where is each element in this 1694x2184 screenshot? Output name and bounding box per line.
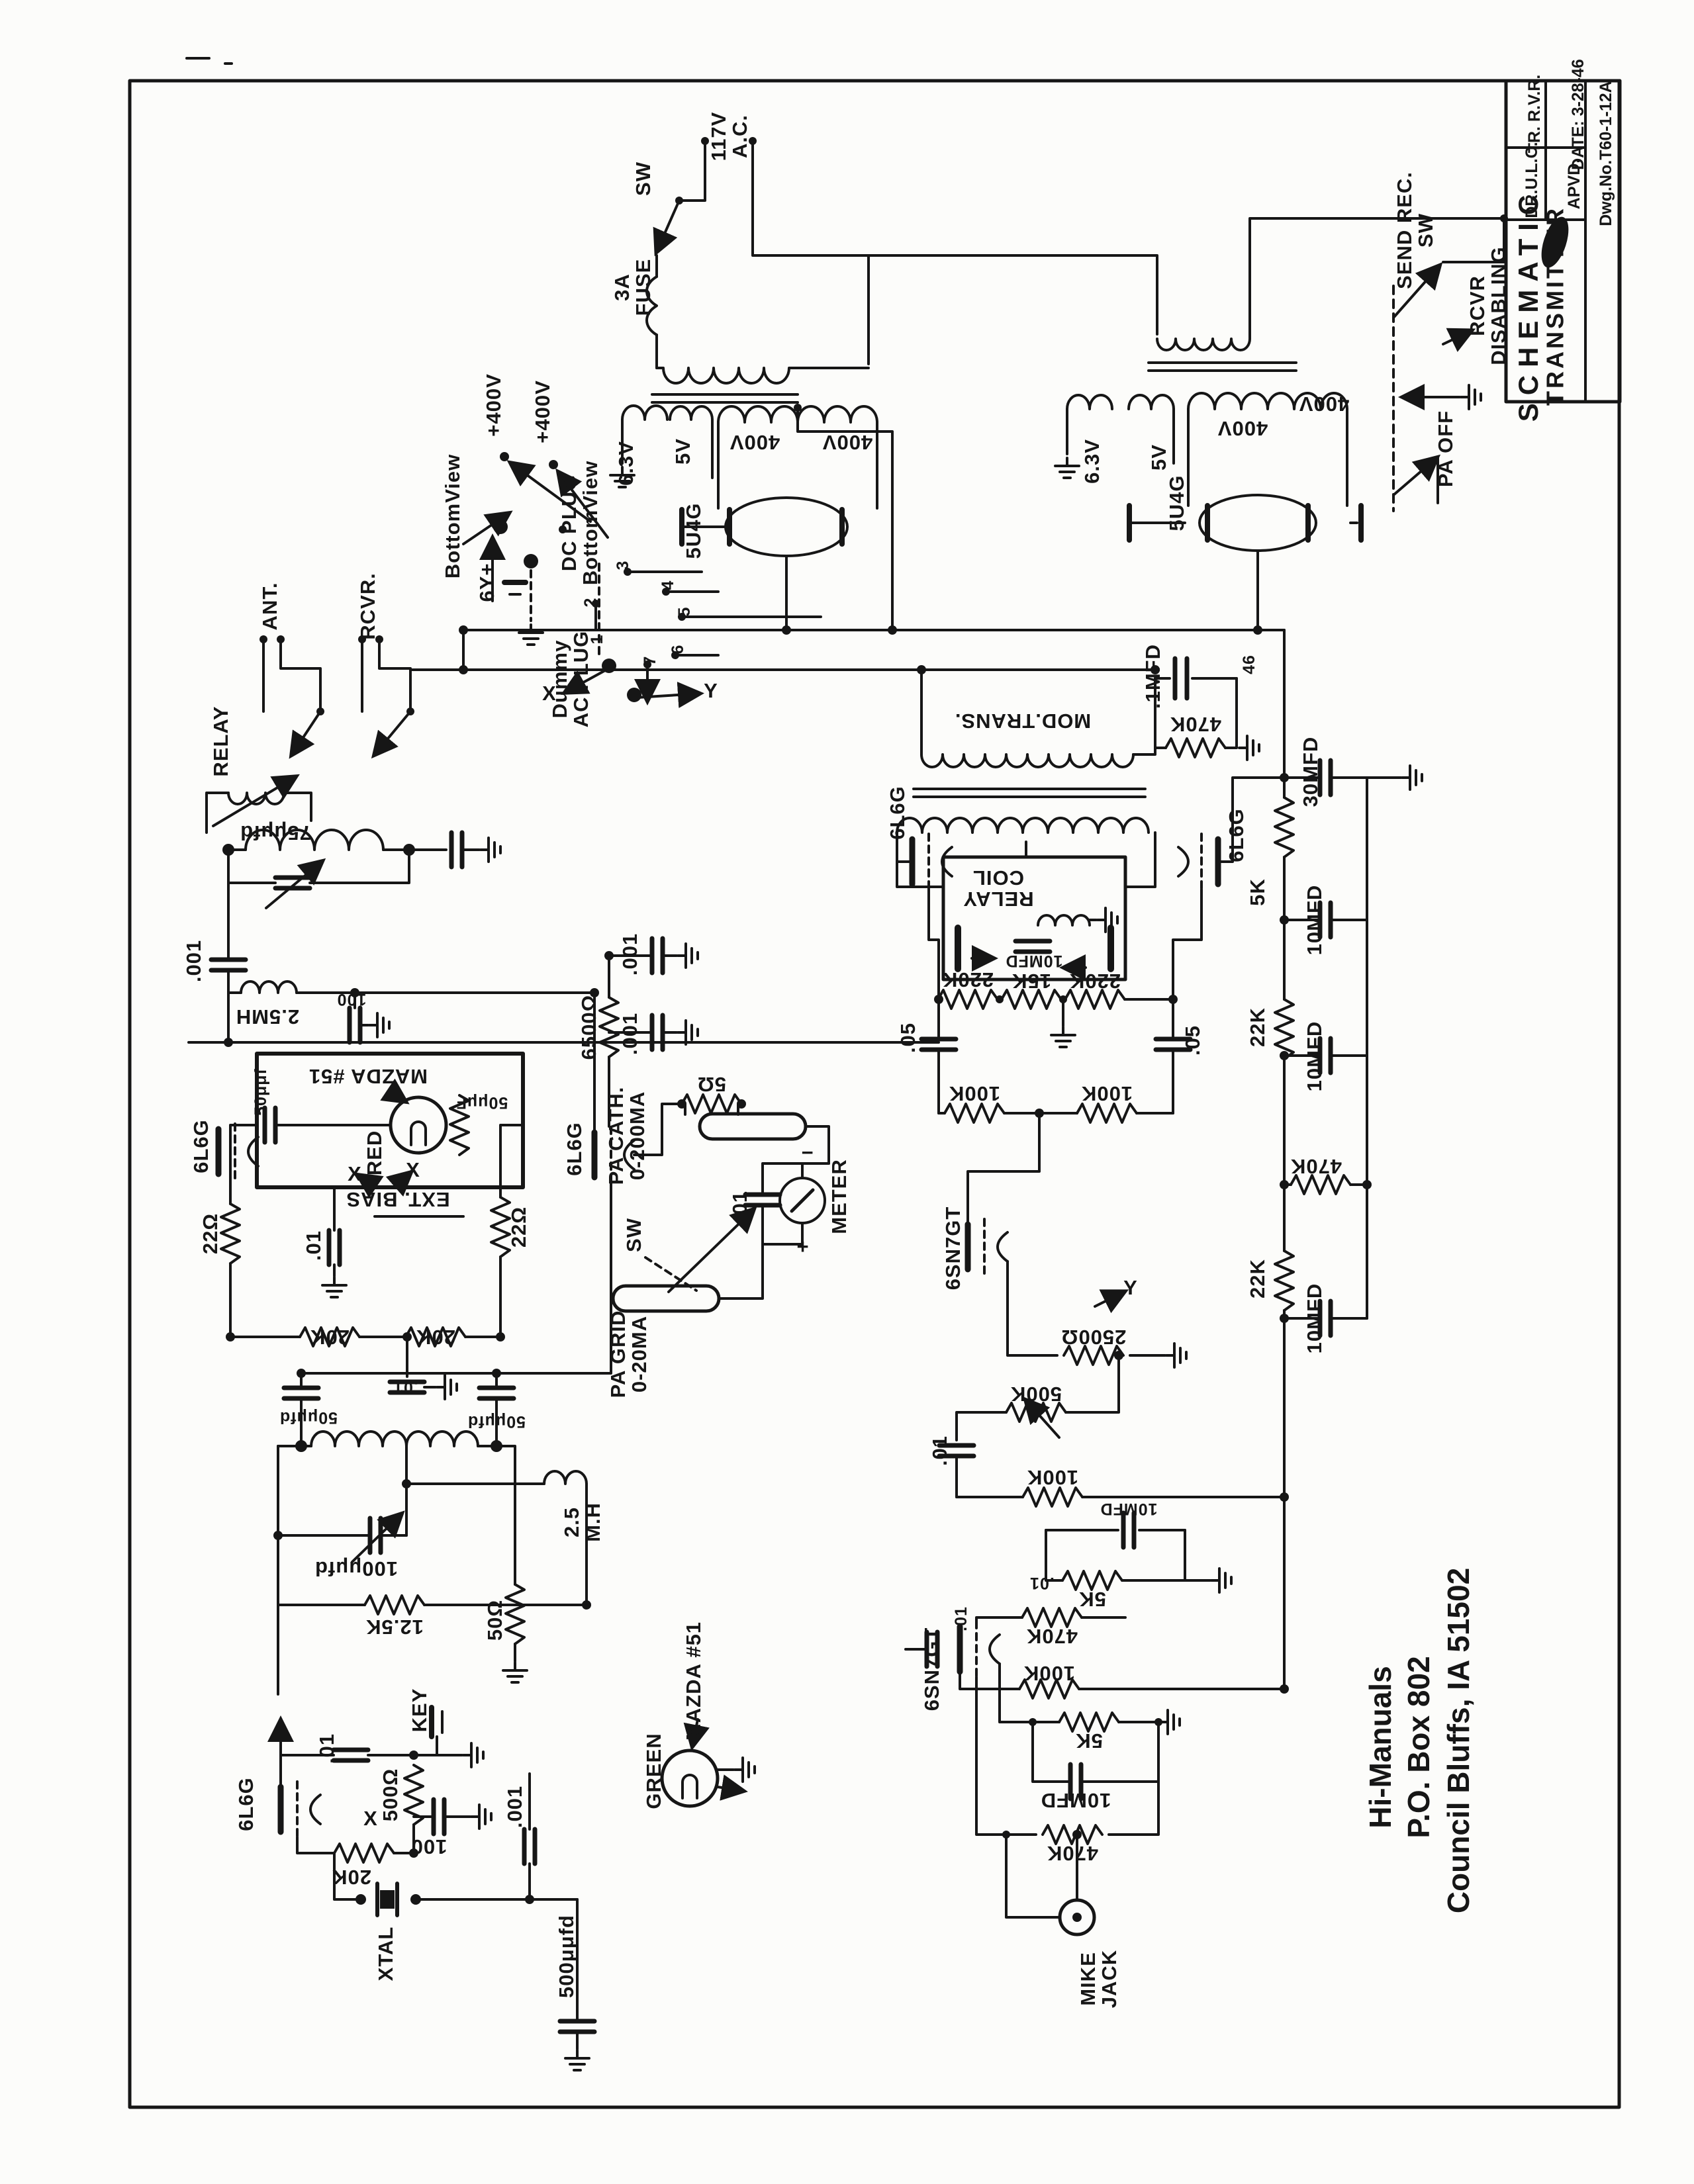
cap-30mfd: 30MFD [1300, 737, 1321, 807]
dummy-ac-plug: Dummy AC PLUG [549, 631, 592, 728]
res-5k-a: 5K [1247, 878, 1268, 906]
mazda-51-red: MAZDA #51 [308, 1066, 428, 1087]
y-plug: Y [704, 680, 718, 702]
res-50ohm: 50Ω [485, 1600, 506, 1641]
pin-3: 3 [614, 561, 632, 570]
six-y-plus: 6Y+ [477, 563, 498, 602]
res-220k-a: 220K [942, 969, 994, 990]
ac-line: 117V A.C. [708, 112, 751, 161]
res-20k-a: 20K [310, 1326, 350, 1347]
pin-5: 5 [676, 607, 693, 617]
res-100k-b: 100K [1081, 1083, 1133, 1104]
res-20k-b: 20K [416, 1326, 455, 1347]
cap-500uufd: 500μμfd [556, 1915, 577, 1998]
pot-500k: 500K [1010, 1383, 1062, 1404]
res-15k: 15K [1012, 970, 1051, 991]
t2-400v-a: 400V [1217, 418, 1268, 439]
rcvr-disabling: RCVR DISABLING [1467, 246, 1509, 365]
mazda-51-green: MAZDA #51 [683, 1621, 704, 1741]
cap-50uufd-c: 50μμfd [279, 1409, 338, 1426]
cap-001-a: .001 [620, 1013, 641, 1055]
pin-46: 46 [1241, 655, 1258, 674]
xtal: XTAL [375, 1927, 397, 1981]
fuse: 3A FUSE [612, 259, 654, 316]
res-22-b: 22Ω [508, 1206, 530, 1248]
meter-minus: − [801, 1142, 814, 1163]
meter: METER [829, 1159, 850, 1234]
tb-date: DATE: 3-28-46 [1570, 59, 1587, 170]
labels-layer: 117V A.C.SW3A FUSESEND REC. SWRCVR DISAB… [0, 0, 1694, 2184]
t1-400v-a: 400V [729, 432, 780, 453]
publisher-1: Hi-Manuals [1365, 1666, 1397, 1828]
cap-10mfd-d: 10MFD [1100, 1500, 1158, 1518]
pa-grid-meter: PA GRID 0-20MA [608, 1310, 650, 1398]
cap-10mfd-b: 10MFD [1304, 1021, 1325, 1092]
res-5ohm: 5Ω [697, 1073, 726, 1095]
meter-switch: SW [624, 1218, 645, 1252]
rect-2: 5U4G [1166, 475, 1188, 531]
cap-05-right: .05 [1182, 1025, 1203, 1056]
cap-50uufd-d: 50μμfd [467, 1413, 526, 1430]
pin-2: 2 [582, 598, 599, 608]
relay: RELAY [211, 705, 232, 776]
res-100k-d: 100K [1023, 1662, 1075, 1684]
mod-trans: MOD.TRANS. [955, 710, 1091, 731]
pin-6: 6 [669, 645, 686, 655]
tube-6l6g-mod-right: 6L6G [1226, 808, 1247, 862]
cap-001-b: .001 [620, 933, 641, 976]
rect-1: 5U4G [683, 503, 704, 559]
cap-01-a: .01 [929, 1435, 951, 1466]
t1-5v: 5V [673, 438, 694, 465]
res-100k-a: 100K [949, 1083, 1000, 1104]
tube-6sn7-2: 6SN7GT [921, 1627, 943, 1711]
res-2500: 2500Ω [1061, 1326, 1127, 1347]
res-20k-osc: 20K [332, 1866, 371, 1888]
tb-transmitter: TRANSMITTER [1542, 206, 1567, 406]
main-switch: SW [633, 161, 654, 196]
cap-10mfd-c: 10MFD [1304, 1283, 1325, 1354]
cap-01-osc: .01 [316, 1733, 338, 1764]
tube-6l6g-osc: 6L6G [236, 1777, 257, 1831]
x-osc: X [363, 1808, 378, 1829]
plus-400v-2: +400V [532, 380, 553, 443]
cap-10mfd-e: 10MFD [1041, 1790, 1111, 1811]
pa-off: PA OFF [1435, 410, 1456, 487]
cap-10mfd-a: 10MFD [1304, 885, 1325, 956]
rcvr: RCVR. [357, 572, 379, 639]
mike-jack: MIKE JACK [1078, 1950, 1120, 2008]
t2-63v: 6.3V [1082, 439, 1103, 484]
cap-001-osc: .001 [504, 1786, 526, 1828]
key: KEY [409, 1688, 430, 1733]
cap-01-e: .01 [1029, 1574, 1055, 1592]
x-plug: X [542, 683, 557, 704]
ant: ANT. [259, 582, 281, 631]
y-audio: Y [1123, 1277, 1138, 1298]
cap-01-b: .01 [953, 1606, 970, 1631]
cap-50uuf-a: 50μμf [252, 1068, 269, 1116]
cap-100uufd: 100μμfd [314, 1558, 398, 1579]
tube-6sn7-1: 6SN7GT [943, 1206, 964, 1291]
t2-5v: 5V [1149, 444, 1170, 471]
pa-cath-meter: PA CATH. 0-200MA [606, 1087, 648, 1185]
res-500-osc: 500Ω [380, 1768, 401, 1822]
cap-10mfd-relay: 10MFD [1006, 952, 1063, 970]
res-100k-c: 100K [1027, 1467, 1078, 1488]
cap-100-b: 100 [337, 991, 367, 1008]
res-5k-c: 5K [1075, 1730, 1103, 1751]
res-22k-a: 22K [1247, 1007, 1268, 1047]
tb-dr: DR.U.L.C. [1523, 142, 1540, 218]
pin-7: 7 [641, 656, 659, 666]
tb-schematic: SCHEMATIC [1514, 187, 1543, 422]
res-470k-mod: 470K [1170, 713, 1221, 735]
cap-01-c: .01 [303, 1230, 324, 1261]
tb-tr: TR. R.V.R. [1526, 75, 1543, 154]
res-5k-b: 5K [1078, 1588, 1106, 1610]
cap-01-d: .01 [393, 1379, 418, 1396]
schematic-page: 117V A.C.SW3A FUSESEND REC. SWRCVR DISAB… [0, 0, 1694, 2184]
tube-6l6g-mod-left: 6L6G [887, 786, 908, 840]
cap-100-osc: 100 [411, 1836, 447, 1857]
res-470k-bleed: 470K [1290, 1156, 1342, 1177]
cap-05-left: .05 [898, 1023, 919, 1053]
res-220k-b: 220K [1069, 970, 1121, 991]
bottom-view-1: BottomView [442, 454, 463, 579]
res-470k-a: 470K [1026, 1625, 1078, 1647]
cap-75uufd: 75μμfd [240, 822, 311, 843]
x-mark-b: X [406, 1160, 420, 1181]
tb-dwg: Dwg.No.T60-1-12A [1597, 81, 1615, 226]
tube-6l6g-pa: 6L6G [564, 1122, 585, 1176]
x-mark-a: X [348, 1163, 362, 1185]
dc-plug: DC PLUG BottomView [559, 461, 601, 586]
red-lamp: RED [364, 1130, 385, 1175]
cap-01-meter: .01 [729, 1191, 751, 1221]
cap-001-ant: .001 [183, 940, 205, 982]
meter-plus: + [796, 1236, 809, 1257]
res-125k: 12.5K [365, 1616, 424, 1637]
t2-400v-b: 400V [1299, 393, 1349, 414]
pin-4: 4 [659, 580, 677, 590]
choke-25mh-a: 2.5MH [236, 1006, 299, 1027]
cap-1mfd: .1MFD [1143, 644, 1164, 709]
tube-6l6g-buffer: 6L6G [191, 1119, 212, 1173]
res-470k-b: 470K [1047, 1843, 1098, 1864]
res-22k-b: 22K [1247, 1259, 1268, 1298]
pin-1: 1 [588, 635, 606, 645]
choke-25mh-b: 2.5 M.H [561, 1502, 604, 1542]
t1-400v-b: 400V [822, 432, 872, 453]
publisher-2: P.O. Box 802 [1403, 1656, 1435, 1838]
ext-bias: EXT. BIAS [346, 1189, 449, 1210]
res-22-a: 22Ω [200, 1213, 221, 1254]
publisher-3: Council Bluffs, IA 51502 [1443, 1568, 1475, 1913]
plus-400v-1: +400V [483, 373, 504, 437]
cap-50uuf-b: 50μμF [456, 1094, 508, 1111]
t1-63v: 6.3V [616, 441, 637, 486]
green-lamp: GREEN [643, 1733, 665, 1809]
send-rec-switch: SEND REC. SW [1394, 171, 1436, 289]
res-6500: 6500Ω [579, 995, 600, 1060]
relay-coil: RELAY COIL [963, 867, 1033, 909]
